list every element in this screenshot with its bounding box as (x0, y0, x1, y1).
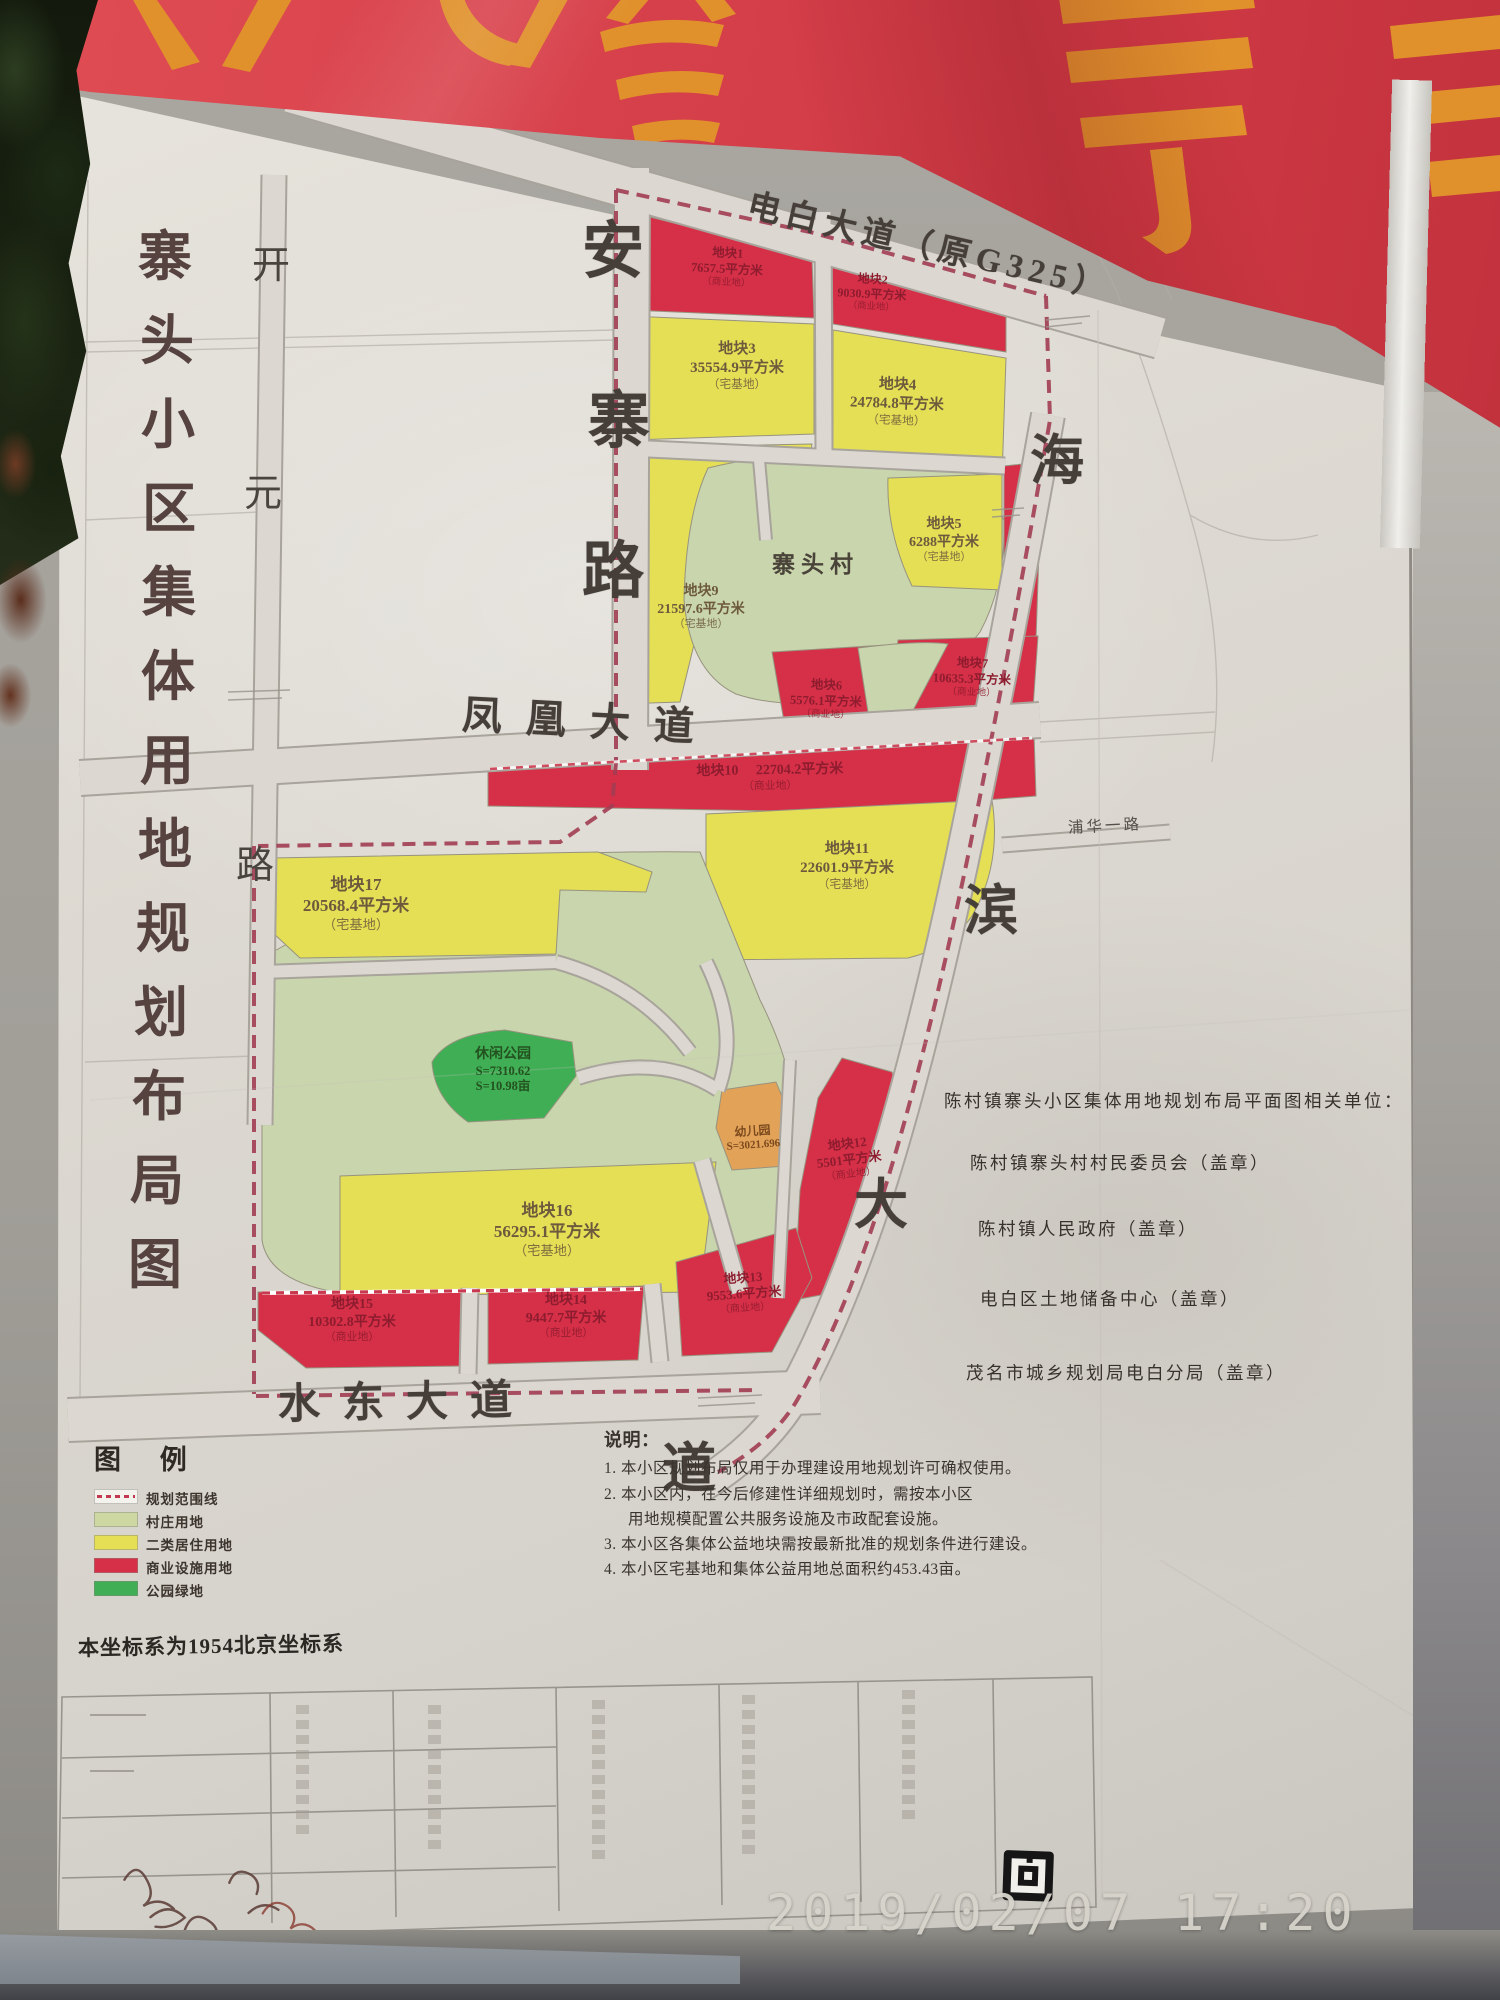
legend-item-park: 公园绿地 (94, 1580, 354, 1596)
legend-swatch-village (94, 1512, 138, 1527)
legend-item-commercial: 商业设施用地 (94, 1557, 354, 1573)
parcel-label-16: 地块16 56295.1平方米 （宅基地） (452, 1200, 642, 1259)
legend-swatch-boundary (94, 1489, 138, 1504)
road-label-haibin-char: 大 (854, 1176, 908, 1235)
related-units-header: 陈村镇寨头小区集体用地规划布局平面图相关单位： (944, 1088, 1404, 1113)
notes-line: 4. 本小区宅基地和集体公益用地总面积约453.43亩。 (604, 1557, 971, 1579)
red-foliage-patch (0, 396, 52, 736)
related-unit-item: 陈村镇寨头村村民委员会（盖章） (970, 1150, 1270, 1175)
titleblock-smallprint (902, 1690, 915, 1820)
titleblock-smallprint (428, 1705, 441, 1855)
road-label-anzhai-char: 安 (582, 218, 644, 286)
road-label-kaiyuan-char: 元 (244, 474, 282, 516)
road-label-shuidong-avenue: 水东大道 (278, 1378, 535, 1429)
parcel-label-3: 地块3 35554.9平方米 （宅基地） (662, 340, 812, 392)
parcel-label-11: 地块11 22601.9平方米 （宅基地） (772, 840, 922, 892)
photo-of-planning-board: 寨 头 小 区 集 体 用 地 规 划 布 局 图 电白大道（原G325） 安 … (0, 0, 1500, 2000)
title-char: 寨 (138, 228, 192, 287)
village-label: 寨头村 (772, 552, 859, 577)
legend-swatch-commercial (94, 1558, 138, 1573)
parcel-label-5: 地块5 6288平方米 （宅基地） (884, 516, 1004, 565)
legend-swatch-residential (94, 1535, 138, 1550)
title-char: 图 (128, 1236, 182, 1295)
coordinate-system-note: 本坐标系为1954北京坐标系 (78, 1628, 344, 1663)
legend-title: 图 例 (94, 1438, 203, 1477)
parcel-label-7: 地块7 10635.3平方米 （商业地） (901, 654, 1042, 702)
title-char: 划 (134, 984, 188, 1043)
related-unit-item: 陈村镇人民政府（盖章） (978, 1216, 1198, 1241)
title-char: 布 (132, 1068, 186, 1127)
title-char: 体 (141, 648, 195, 707)
road-label-kaiyuan-char: 开 (252, 246, 290, 288)
notes-line: 2. 本小区内，在今后修建性详细规划时，需按本小区 (604, 1482, 973, 1504)
titleblock-smallprint (90, 1770, 134, 1772)
parcel-label-9: 地块9 21597.6平方米 （宅基地） (636, 583, 766, 632)
title-char: 规 (136, 900, 190, 959)
titleblock-smallprint (592, 1700, 605, 1865)
title-char: 用 (140, 732, 194, 791)
title-char: 局 (130, 1152, 184, 1211)
title-char: 区 (142, 480, 196, 539)
parcel-label-2: 地块2 9030.9平方米 （商业地） (811, 269, 933, 317)
title-char: 头 (140, 312, 194, 371)
road-label-anzhai-char: 寨 (588, 388, 650, 456)
title-char: 小 (141, 396, 195, 455)
wall-right (1413, 392, 1500, 1952)
parcel-label-10: 地块10 22704.2平方米 （商业地） (660, 760, 881, 795)
related-unit-item: 电白区土地储备中心（盖章） (980, 1286, 1240, 1311)
notes-line: 3. 本小区各集体公益地块需按最新批准的规划条件进行建设。 (604, 1532, 1037, 1554)
parcel-label-14: 地块14 9447.7平方米 （商业地） (496, 1292, 636, 1341)
title-char: 集 (142, 564, 196, 623)
notes-line: 用地规模配置公共服务设施及市政配套设施。 (628, 1507, 948, 1529)
parcel-label-13: 地块13 9553.6平方米 （商业地） (678, 1266, 811, 1320)
road-label-anzhai-char: 路 (582, 538, 644, 606)
title-char: 地 (138, 816, 192, 875)
notes-line: 1. 本小区规划布局仅用于办理建设用地规划许可确权使用。 (604, 1456, 1021, 1478)
titleblock-smallprint (90, 1714, 146, 1716)
road-label-haibin-char: 滨 (964, 882, 1018, 941)
legend-item-residential: 二类居住用地 (94, 1534, 354, 1550)
titleblock-smallprint (742, 1695, 755, 1860)
road-label-haibin-char: 海 (1030, 432, 1084, 491)
related-unit-item: 茂名市城乡规划局电白分局（盖章） (966, 1360, 1286, 1385)
parcel-label-17: 地块17 20568.4平方米 （宅基地） (256, 874, 456, 933)
notes-title: 说明： (604, 1426, 660, 1452)
camera-timestamp: 2019/02/07 17:20 (766, 1884, 1360, 1942)
legend-swatch-park (94, 1581, 138, 1596)
titleblock-smallprint (296, 1705, 309, 1835)
parcel-label-15: 地块15 10302.8平方米 （商业地） (277, 1296, 427, 1345)
parcel-label-6: 地块6 5576.1平方米 （商业地） (760, 676, 891, 724)
parcel-label-4: 地块4 24784.8平方米 （宅基地） (821, 373, 973, 430)
parcel-label-1: 地块1 7657.5平方米 （商业地） (666, 243, 788, 293)
legend-item-boundary: 规划范围线 (94, 1488, 354, 1504)
legend-item-village: 村庄用地 (94, 1511, 354, 1527)
park-label: 休闲公园 S=7310.62 S=10.98亩 (433, 1046, 573, 1095)
